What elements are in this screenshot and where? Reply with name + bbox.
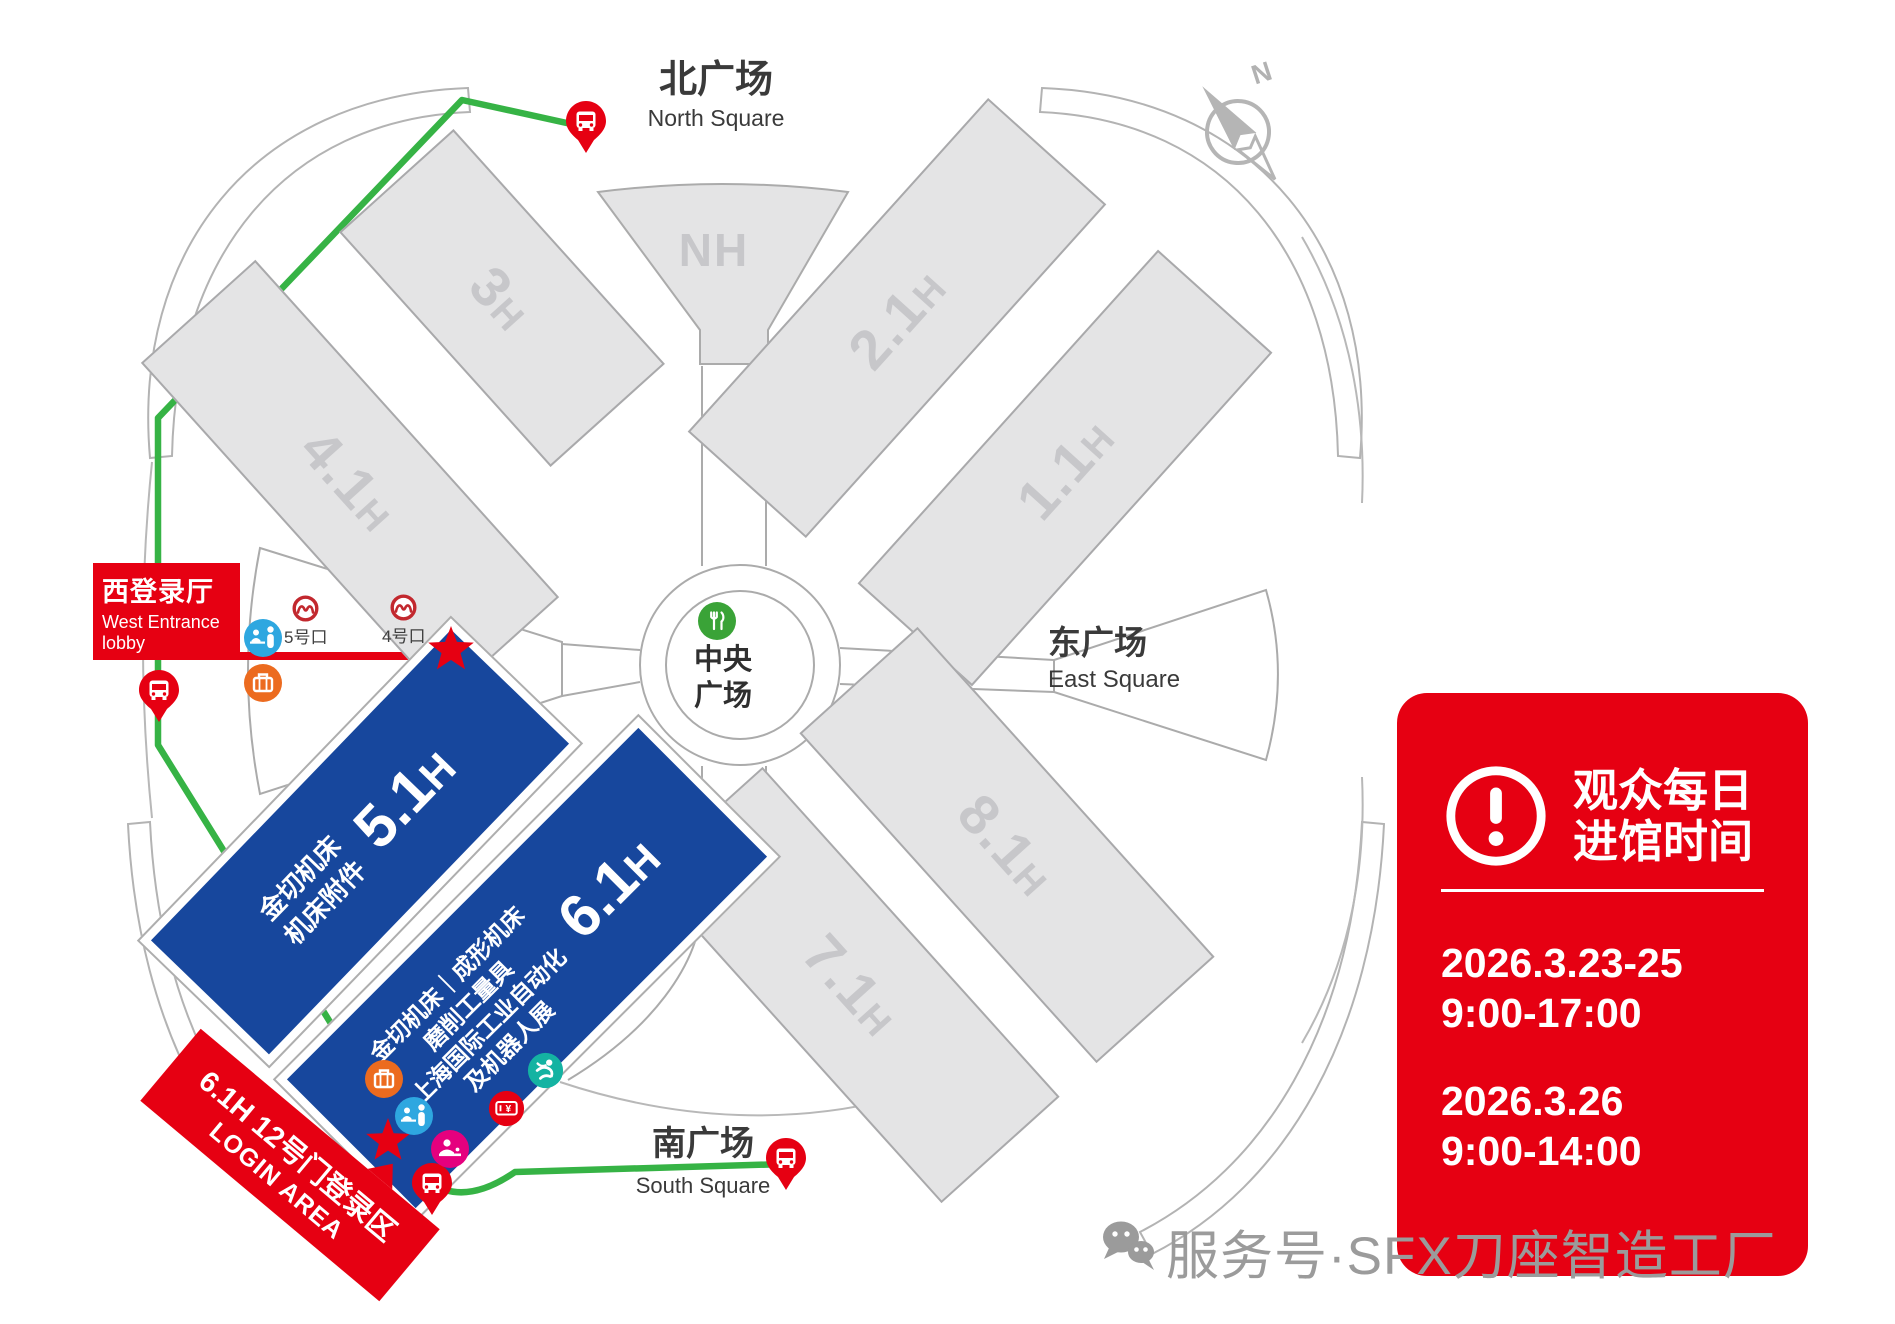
bus-stop-pin-west (139, 670, 179, 722)
gate5-label: 5号口 (284, 623, 327, 648)
alert-icon (1441, 761, 1551, 871)
central-square-label: 中央 广场 (660, 642, 786, 714)
activity-person-icon (527, 1052, 564, 1089)
bus-stop-pin-south (766, 1138, 806, 1190)
hall-8-1h-label: 8.1H (945, 781, 1069, 909)
hall-5-1h-label: 5.1H (339, 732, 468, 862)
schedule-entry: 2026.3.26 9:00-14:00 (1441, 1076, 1764, 1176)
hall-2-1h-label: 2.1H (835, 254, 959, 382)
hall-7-1h-label: 7.1H (790, 921, 914, 1049)
schedule-entry: 2026.3.23-25 9:00-17:00 (1441, 938, 1764, 1038)
ticket-icon: ¥ (488, 1090, 525, 1127)
wing-southeast (1140, 822, 1384, 1254)
hall-5-1h-categories: 金切机床 机床附件 (251, 829, 374, 953)
hall-1-1h-label: 1.1H (1003, 404, 1127, 532)
svg-text:¥: ¥ (506, 1104, 512, 1115)
visitor-hours-card: 观众每日 进馆时间 2026.3.23-25 9:00-17:00 2026.3… (1397, 693, 1808, 1276)
venue-map: 4.1H 3H 2.1H 1.1H 8.1H 7.1H NH 金切机床 机床附件… (0, 0, 1895, 1324)
hall-nh-label: NH (679, 223, 749, 277)
metro-icon-gate4 (390, 594, 417, 621)
registration-desk-icon-southwest (394, 1096, 434, 1136)
bus-stop-pin-southwest (412, 1163, 452, 1215)
north-square-label: 北广场 North Square (590, 48, 842, 132)
card-title: 观众每日 进馆时间 (1573, 765, 1753, 868)
hall-4-1h-label: 4.1H (288, 416, 412, 544)
compass-icon (1178, 52, 1308, 212)
restaurant-icon (697, 601, 737, 641)
east-square-label: 东广场 East Square (1048, 616, 1268, 694)
card-divider (1441, 889, 1764, 892)
west-entrance-lobby-box: 西登录厅 West Entrancelobby (93, 563, 240, 660)
watermark-text: 服务号·SFX刀座智造工厂 (1166, 1214, 1777, 1290)
luggage-storage-icon-west (243, 663, 283, 703)
luggage-storage-icon-southwest (364, 1059, 404, 1099)
badge-pickup-icon (430, 1129, 470, 1169)
registration-desk-icon-west (243, 618, 283, 658)
bus-stop-pin-north (566, 101, 606, 153)
hall-3h-label: 3H (457, 253, 547, 343)
hall-6-1h-label: 6.1H (543, 822, 672, 951)
gate4-label: 4号口 (382, 622, 425, 647)
wechat-icon (1098, 1214, 1158, 1276)
metro-icon-gate5 (292, 595, 319, 622)
west-corridor (562, 644, 640, 696)
meeting-point-star-west (427, 626, 475, 674)
